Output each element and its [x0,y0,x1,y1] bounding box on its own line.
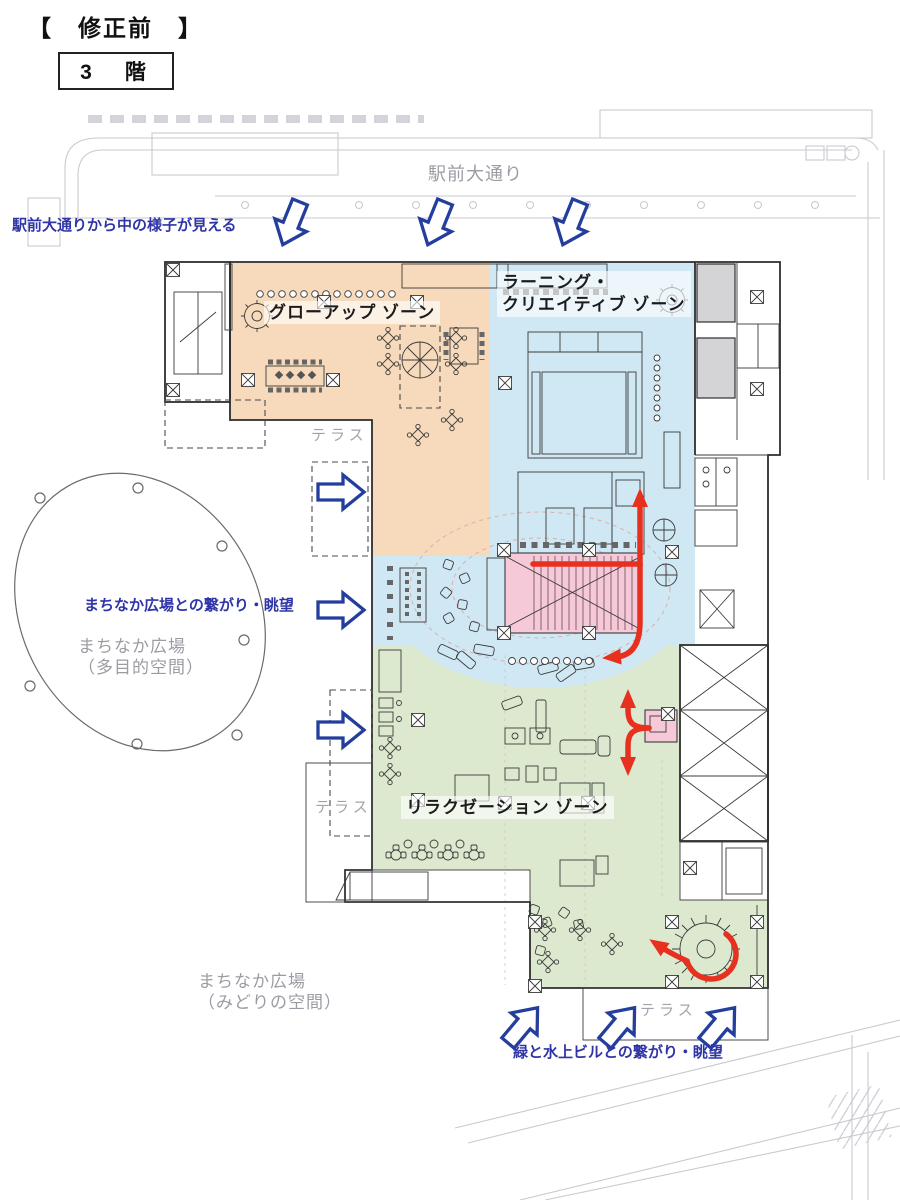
stair-block-west [174,264,232,374]
terrace-label-2: テラス [315,799,372,818]
terrace-label-1: テラス [311,427,368,446]
terrace-slab [306,763,372,902]
view-arrow-west-1-icon [318,475,364,509]
void-shaft [680,645,768,841]
annotation-street-view: 駅前大通りから中の様子が見える [12,217,237,236]
view-arrow-west-2-icon [318,593,364,627]
plaza-green-line2: （みどりの空間） [198,992,342,1013]
annotation-green-link: 緑と水上ビルとの繋がり・眺望 [513,1044,723,1063]
learning-zone-line1: ラーニング・ [502,272,686,294]
plaza-green-line1: まちなか広場 [198,971,342,992]
plaza-green-label: まちなか広場 （みどりの空間） [198,971,342,1014]
floor-plan-page: 【 修正前 】 3 階 駅前大通り 駅前大通りから中の様子が見える まちなか広場… [0,0,900,1200]
learning-zone-label: ラーニング・ クリエイティブ ゾーン [497,271,691,317]
growup-zone-label: グローアップ ゾーン [264,301,440,324]
view-arrow-west-3-icon [318,713,364,747]
zone-fills [230,262,768,988]
annotation-plaza-link: まちなか広場との繋がり・眺望 [84,597,294,616]
right-service-band [695,262,779,628]
stair-south [336,870,530,902]
street-name-label: 駅前大通り [428,163,523,186]
floor-label-box: 3 階 [58,52,174,90]
terrace-label-3: テラス [640,1002,697,1021]
floor-label: 3 階 [80,56,152,86]
entry-arrow-down-3-icon [547,196,596,251]
entry-arrow-down-1-icon [267,196,316,251]
relaxation-zone-label: リラクゼーション ゾーン [401,796,614,819]
plaza-multipurpose-label: まちなか広場 （多目的空間） [78,636,204,679]
plaza-multipurpose-line1: まちなか広場 [78,636,204,657]
learning-zone-line2: クリエイティブ ゾーン [502,294,686,316]
plaza-multipurpose-line2: （多目的空間） [78,657,204,678]
revision-label: 【 修正前 】 [28,14,203,43]
